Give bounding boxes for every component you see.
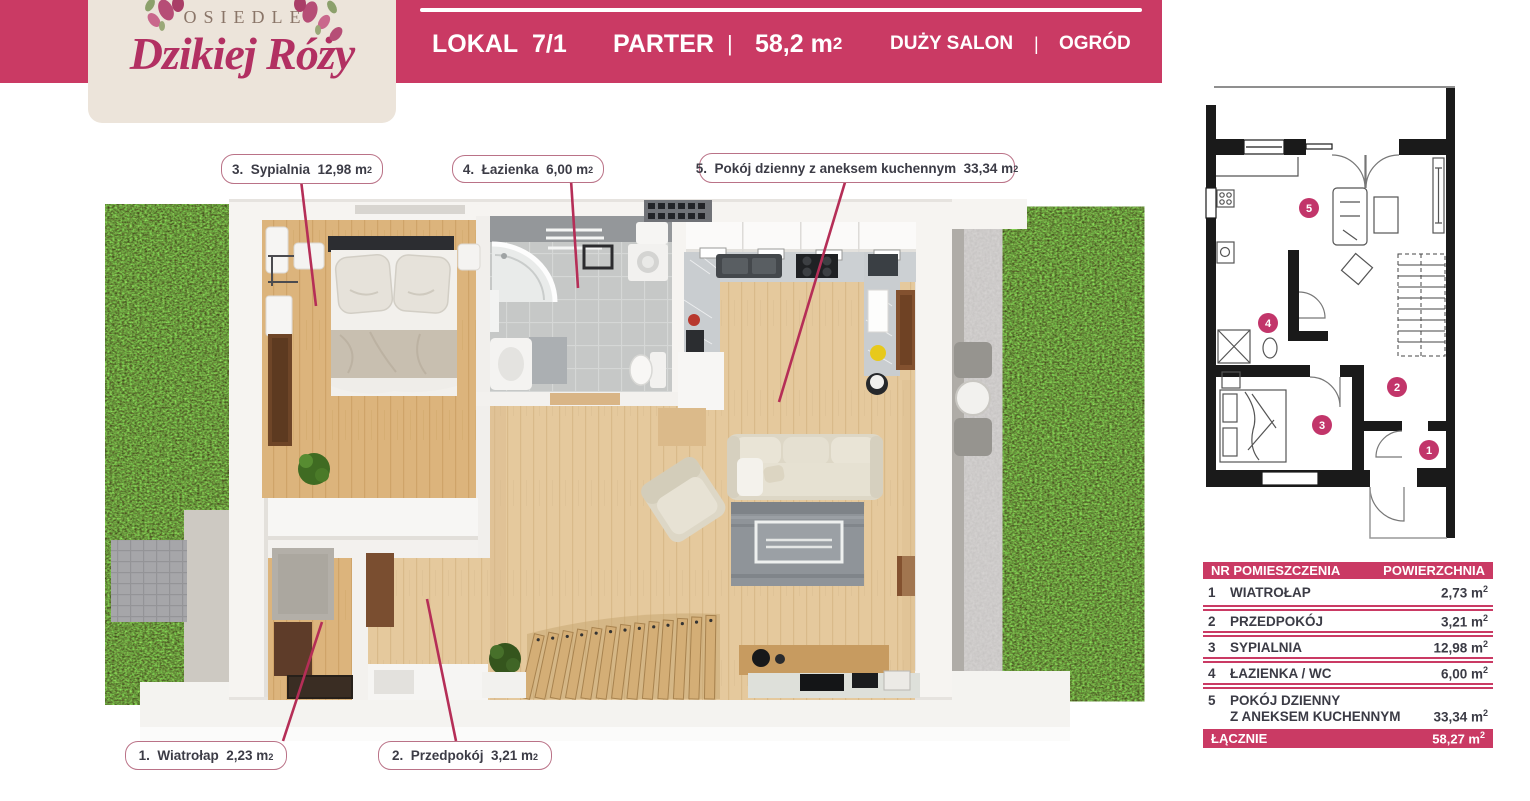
svg-text:3: 3 <box>1319 420 1325 432</box>
svg-text:4: 4 <box>1265 318 1272 330</box>
svg-text:1: 1 <box>1426 445 1432 457</box>
svg-text:5: 5 <box>1306 203 1312 215</box>
svg-text:2: 2 <box>1394 382 1400 394</box>
